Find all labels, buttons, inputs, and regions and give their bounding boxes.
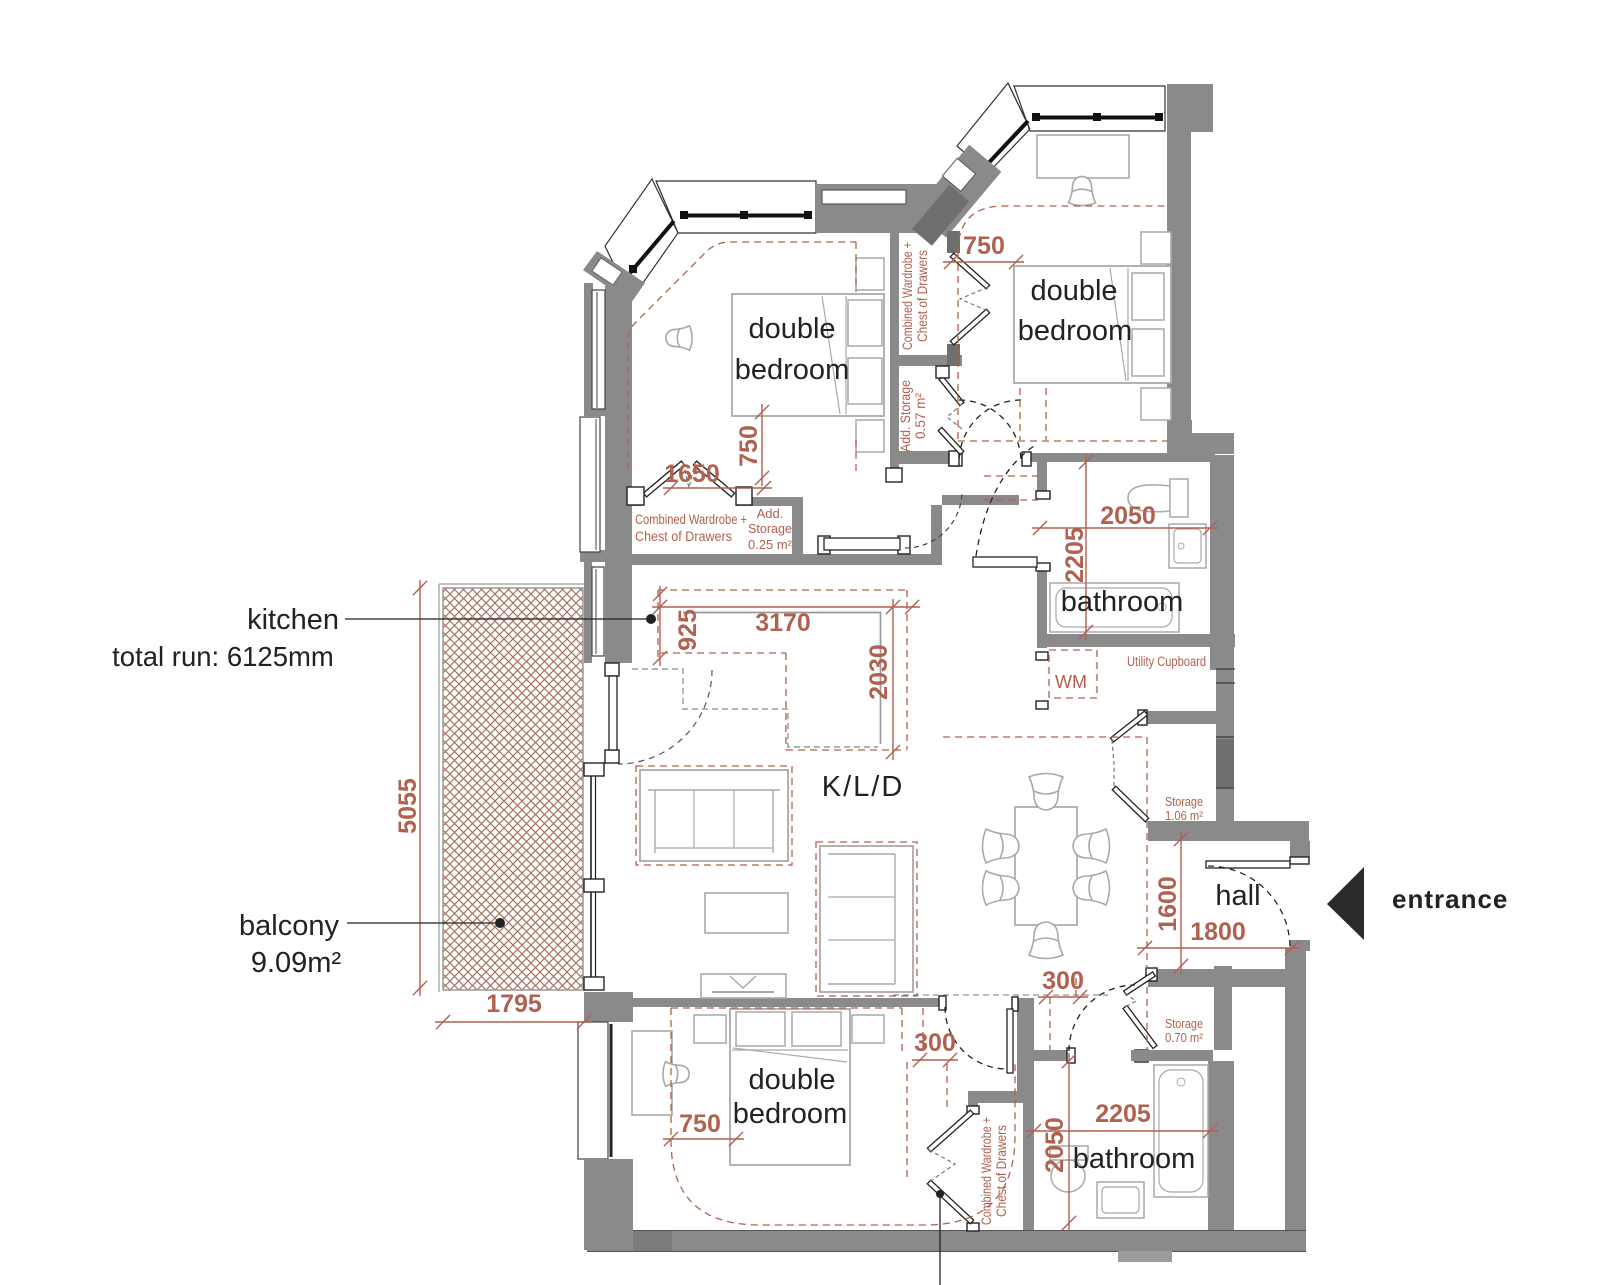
svg-text:925: 925	[674, 609, 702, 651]
svg-text:Storage: Storage	[748, 521, 792, 536]
svg-text:0.57 m²: 0.57 m²	[913, 393, 928, 439]
svg-text:Add. Storage: Add. Storage	[898, 380, 913, 452]
svg-text:2050: 2050	[1100, 502, 1156, 530]
svg-text:double: double	[1030, 275, 1117, 307]
svg-text:2030: 2030	[865, 644, 893, 700]
svg-text:Storage: Storage	[1165, 794, 1203, 809]
svg-text:2205: 2205	[1061, 527, 1089, 583]
svg-text:0.25 m²: 0.25 m²	[748, 537, 793, 552]
svg-text:bedroom: bedroom	[733, 1098, 847, 1130]
svg-text:Chest of Drawers: Chest of Drawers	[635, 529, 732, 544]
svg-text:5055: 5055	[394, 778, 422, 834]
svg-text:total run: 6125mm: total run: 6125mm	[112, 641, 334, 672]
svg-text:3170: 3170	[755, 609, 811, 637]
svg-text:Add.: Add.	[757, 506, 784, 521]
svg-text:9.09m²: 9.09m²	[251, 947, 342, 979]
svg-text:bathroom: bathroom	[1061, 586, 1184, 618]
svg-text:bedroom: bedroom	[1018, 315, 1132, 347]
svg-text:300: 300	[914, 1029, 956, 1057]
svg-text:K/L/D: K/L/D	[822, 771, 905, 803]
svg-text:Combined Wardrobe +: Combined Wardrobe +	[979, 1117, 994, 1225]
svg-text:Chest of Drawers: Chest of Drawers	[994, 1125, 1009, 1217]
svg-text:2205: 2205	[1095, 1100, 1151, 1128]
svg-text:750: 750	[735, 425, 763, 467]
svg-text:Combined Wardrobe +: Combined Wardrobe +	[900, 242, 915, 350]
svg-text:750: 750	[679, 1110, 721, 1138]
svg-text:Combined Wardrobe +: Combined Wardrobe +	[635, 512, 747, 527]
svg-text:Storage: Storage	[1165, 1016, 1203, 1031]
svg-text:1.06 m²: 1.06 m²	[1165, 808, 1204, 823]
svg-text:1600: 1600	[1154, 876, 1182, 932]
svg-text:Utility Cupboard: Utility Cupboard	[1127, 654, 1206, 669]
svg-text:1800: 1800	[1190, 918, 1246, 946]
svg-text:entrance: entrance	[1392, 884, 1508, 914]
svg-text:Chest of Drawers: Chest of Drawers	[915, 250, 930, 342]
svg-text:WM: WM	[1055, 672, 1087, 692]
svg-text:bedroom: bedroom	[735, 354, 849, 386]
svg-text:double: double	[748, 1064, 835, 1096]
svg-text:2050: 2050	[1041, 1117, 1069, 1173]
svg-text:hall: hall	[1215, 880, 1260, 912]
svg-text:kitchen: kitchen	[247, 604, 339, 636]
svg-text:bathroom: bathroom	[1073, 1143, 1196, 1175]
svg-text:balcony: balcony	[239, 910, 339, 942]
svg-text:750: 750	[963, 232, 1005, 260]
svg-text:300: 300	[1042, 967, 1084, 995]
svg-text:1795: 1795	[486, 990, 542, 1018]
svg-text:1650: 1650	[664, 460, 720, 488]
svg-text:double: double	[748, 313, 835, 345]
svg-text:0.70 m²: 0.70 m²	[1165, 1030, 1204, 1045]
